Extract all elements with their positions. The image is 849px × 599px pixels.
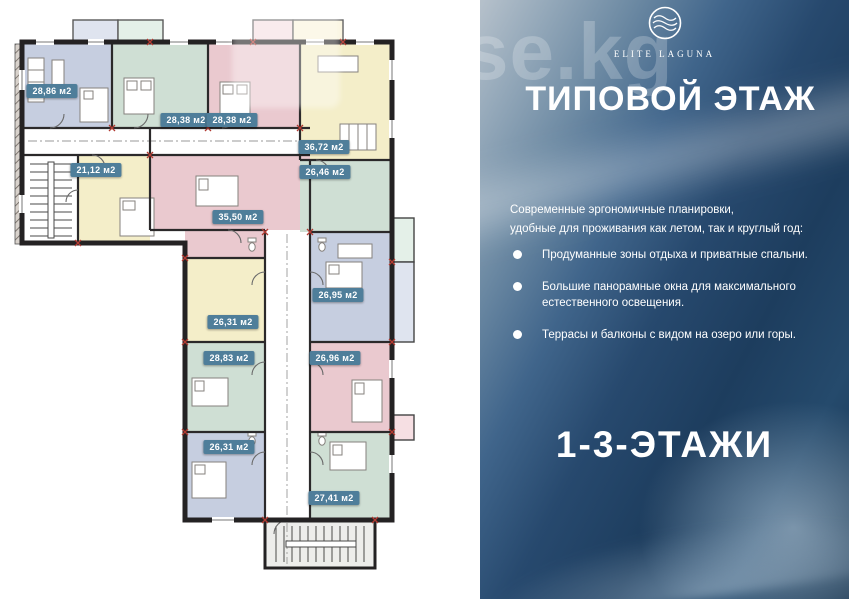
bullet-dot-icon	[513, 282, 522, 291]
feature-item: Террасы и балконы с видом на озеро или г…	[513, 327, 837, 344]
feature-text: Продуманные зоны отдыха и приватные спал…	[542, 247, 808, 264]
feature-text: Террасы и балконы с видом на озеро или г…	[542, 327, 796, 344]
floor-plan-area: 28,86 м228,38 м228,38 м236,72 м226,46 м2…	[0, 0, 480, 599]
feature-item: Большие панорамные окна для максимальног…	[513, 279, 837, 312]
feature-text: Большие панорамные окна для максимальног…	[542, 279, 837, 312]
feature-list: Продуманные зоны отдыха и приватные спал…	[513, 247, 837, 359]
feature-item: Продуманные зоны отдыха и приватные спал…	[513, 247, 837, 264]
bullet-dot-icon	[513, 250, 522, 259]
poster: 28,86 м228,38 м228,38 м236,72 м226,46 м2…	[0, 0, 849, 599]
laguna-wave-icon	[645, 3, 685, 43]
floors-label: 1-3-ЭТАЖИ	[480, 424, 849, 466]
panel-title: ТИПОВОЙ ЭТАЖ	[480, 80, 849, 119]
brand-logo: ELITE LAGUNA	[480, 3, 849, 59]
intro-text: Современные эргономичные планировки, удо…	[510, 201, 835, 238]
info-panel: se.kg ELITE LAGUNA ТИПОВОЙ ЭТАЖ Современ…	[480, 0, 849, 599]
brand-name: ELITE LAGUNA	[480, 49, 849, 59]
floor-plan-svg	[0, 0, 480, 599]
intro-line-1: Современные эргономичные планировки,	[510, 204, 734, 216]
intro-line-2: удобные для проживания как летом, так и …	[510, 223, 803, 235]
bullet-dot-icon	[513, 330, 522, 339]
